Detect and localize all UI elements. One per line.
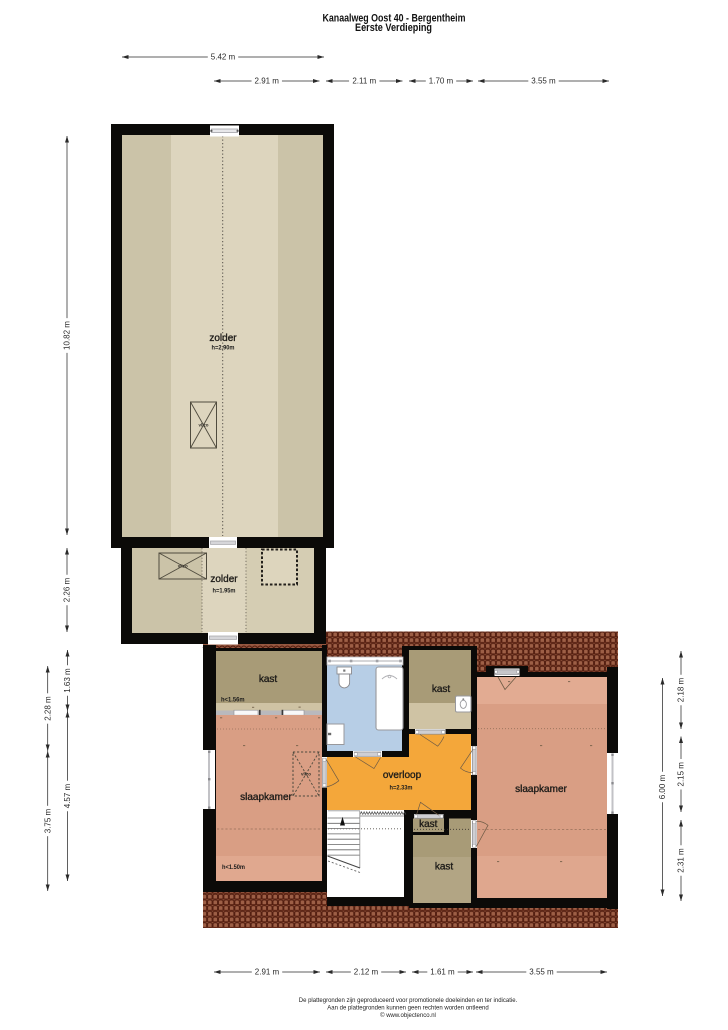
svg-text:2.15 m: 2.15 m — [677, 762, 686, 787]
svg-text:1.70 m: 1.70 m — [429, 77, 454, 86]
svg-text:3.55 m: 3.55 m — [531, 77, 556, 86]
svg-text:10.82 m: 10.82 m — [63, 321, 72, 350]
svg-text:h=1.95m: h=1.95m — [213, 588, 236, 595]
svg-text:kast: kast — [432, 684, 451, 695]
svg-text:Aan de plattegronden kunnen ge: Aan de plattegronden kunnen geen rechten… — [327, 1006, 488, 1012]
svg-text:2.18 m: 2.18 m — [677, 677, 686, 702]
svg-text:1.63 m: 1.63 m — [63, 668, 72, 693]
svg-text:2.91 m: 2.91 m — [255, 77, 280, 86]
svg-text:zolder: zolder — [209, 333, 237, 344]
svg-text:h<1.50m: h<1.50m — [222, 864, 245, 871]
svg-text:2.31 m: 2.31 m — [677, 848, 686, 873]
svg-text:kast: kast — [435, 862, 454, 873]
svg-text:2.11 m: 2.11 m — [352, 77, 376, 86]
svg-text:2.26 m: 2.26 m — [63, 577, 72, 602]
svg-text:De plattegronden zijn geproduc: De plattegronden zijn geproduceerd voor … — [299, 998, 518, 1004]
svg-text:2.12 m: 2.12 m — [354, 968, 379, 977]
svg-text:vlizo: vlizo — [178, 564, 188, 569]
svg-text:2.91 m: 2.91 m — [255, 968, 280, 977]
svg-text:5.42 m: 5.42 m — [211, 53, 236, 62]
svg-text:1.61 m: 1.61 m — [430, 968, 455, 977]
svg-text:3.55 m: 3.55 m — [529, 968, 554, 977]
svg-text:6.00 m: 6.00 m — [658, 774, 667, 799]
svg-text:3.75 m: 3.75 m — [43, 808, 52, 833]
svg-text:h=2.33m: h=2.33m — [390, 785, 413, 792]
svg-text:h=2.90m: h=2.90m — [212, 345, 235, 352]
svg-text:h<1.56m: h<1.56m — [221, 697, 245, 704]
svg-text:kast: kast — [259, 674, 278, 685]
svg-text:kast: kast — [419, 819, 438, 830]
svg-text:slaapkamer: slaapkamer — [515, 784, 567, 795]
svg-text:vlizo: vlizo — [198, 423, 208, 428]
svg-text:overloop: overloop — [383, 770, 422, 781]
svg-text:4.57 m: 4.57 m — [63, 783, 72, 808]
svg-text:vlizo: vlizo — [301, 772, 311, 777]
svg-text:© www.objectenco.nl: © www.objectenco.nl — [380, 1012, 436, 1019]
svg-text:2.28 m: 2.28 m — [43, 696, 52, 721]
svg-text:slaapkamer: slaapkamer — [240, 792, 292, 803]
svg-text:zolder: zolder — [210, 574, 238, 585]
svg-text:Eerste Verdieping: Eerste Verdieping — [355, 22, 432, 34]
